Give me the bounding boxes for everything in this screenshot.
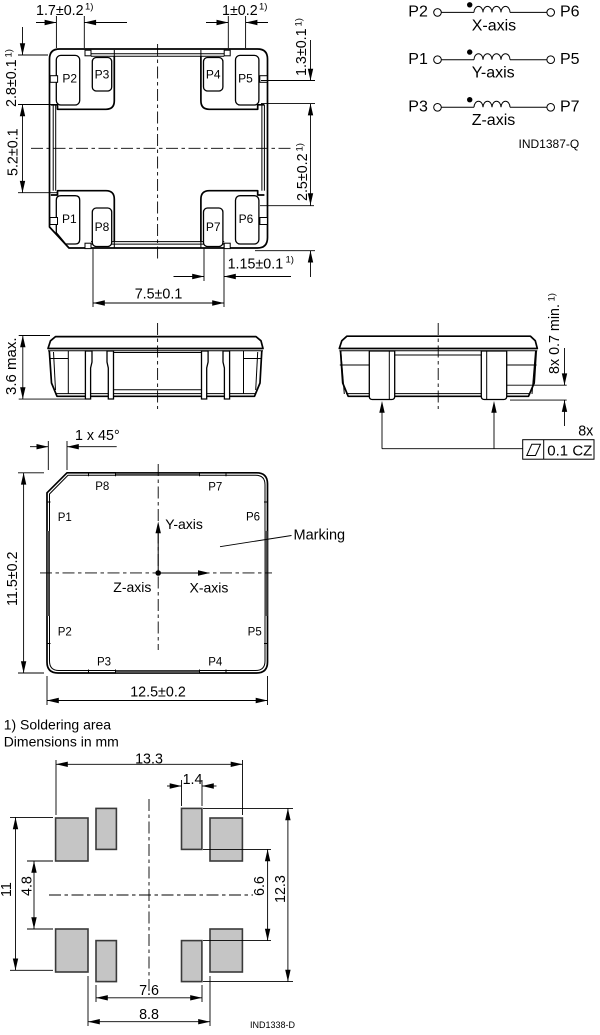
svg-text:13.3: 13.3	[135, 752, 163, 768]
svg-text:P5: P5	[238, 71, 253, 85]
svg-text:8x 0.7 min.: 8x 0.7 min.	[547, 304, 563, 374]
svg-text:P5: P5	[248, 627, 262, 639]
svg-text:1): 1)	[295, 143, 306, 151]
svg-text:8.8: 8.8	[139, 1007, 159, 1023]
svg-text:12.5±0.2: 12.5±0.2	[130, 685, 186, 701]
svg-text:P1: P1	[58, 512, 72, 524]
svg-text:4.8: 4.8	[20, 876, 36, 896]
svg-text:1): 1)	[85, 2, 93, 13]
svg-text:X-axis: X-axis	[472, 17, 516, 34]
svg-text:P5: P5	[560, 51, 580, 68]
svg-text:7.5±0.1: 7.5±0.1	[135, 286, 183, 302]
svg-text:1.4: 1.4	[183, 772, 203, 788]
svg-text:P3: P3	[97, 656, 111, 668]
svg-text:1.15±0.1: 1.15±0.1	[228, 257, 284, 273]
svg-text:IND1338-D: IND1338-D	[250, 1020, 296, 1030]
svg-text:P3: P3	[95, 67, 110, 81]
svg-text:X-axis: X-axis	[190, 580, 229, 596]
svg-text:11: 11	[0, 882, 15, 897]
svg-text:2.8±0.1: 2.8±0.1	[4, 59, 20, 107]
svg-text:0.1 CZ: 0.1 CZ	[547, 442, 592, 459]
svg-text:P6: P6	[239, 212, 254, 226]
svg-text:1): 1)	[259, 2, 267, 13]
svg-text:5.2±0.1: 5.2±0.1	[6, 128, 22, 176]
svg-text:P7: P7	[560, 99, 580, 116]
svg-text:Z-axis: Z-axis	[113, 579, 151, 595]
svg-text:3.6 max.: 3.6 max.	[3, 337, 20, 395]
svg-text:P6: P6	[246, 512, 260, 524]
svg-text:P8: P8	[95, 481, 109, 493]
svg-text:Marking: Marking	[294, 528, 346, 544]
svg-text:6.6: 6.6	[252, 876, 268, 896]
svg-text:P4: P4	[206, 67, 221, 81]
svg-text:P3: P3	[408, 99, 428, 116]
svg-text:2.5±0.2: 2.5±0.2	[295, 153, 311, 201]
svg-text:P7: P7	[208, 482, 222, 494]
svg-text:1.3±0.1: 1.3±0.1	[294, 28, 310, 76]
svg-text:P2: P2	[58, 627, 72, 639]
svg-text:P7: P7	[206, 220, 221, 234]
svg-text:1±0.2: 1±0.2	[222, 3, 258, 19]
svg-text:P6: P6	[560, 4, 580, 21]
svg-text:Y-axis: Y-axis	[472, 65, 515, 82]
svg-text:P2: P2	[62, 71, 77, 85]
svg-text:1): 1)	[547, 293, 558, 301]
svg-text:P2: P2	[408, 4, 428, 21]
svg-text:1.7±0.2: 1.7±0.2	[36, 3, 84, 19]
svg-text:Y-axis: Y-axis	[165, 516, 203, 532]
svg-text:P8: P8	[95, 220, 110, 234]
svg-text:P4: P4	[208, 656, 223, 668]
svg-text:1) Soldering area: 1) Soldering area	[4, 717, 112, 733]
svg-text:1): 1)	[286, 255, 294, 266]
svg-text:11.5±0.2: 11.5±0.2	[5, 551, 21, 606]
svg-text:IND1387-Q: IND1387-Q	[519, 137, 580, 151]
svg-text:8x: 8x	[578, 424, 593, 440]
svg-text:1): 1)	[294, 18, 305, 26]
svg-text:Z-axis: Z-axis	[472, 112, 516, 129]
svg-text:P1: P1	[408, 51, 428, 68]
svg-text:1 x 45°: 1 x 45°	[75, 428, 120, 444]
svg-text:Dimensions in mm: Dimensions in mm	[4, 734, 119, 750]
svg-text:7.6: 7.6	[139, 983, 159, 999]
svg-text:12.3: 12.3	[273, 875, 289, 903]
svg-text:1): 1)	[4, 49, 15, 57]
svg-text:P1: P1	[62, 212, 77, 226]
